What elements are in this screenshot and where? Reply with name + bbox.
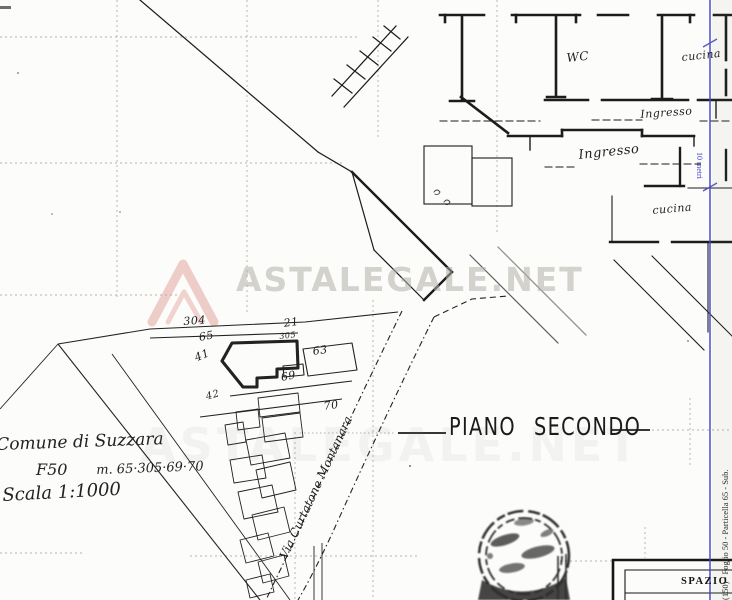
footer-block-label: SPAZIO RI (681, 577, 732, 588)
room-label-wc: WC (566, 50, 590, 64)
note-sheet: F50 (36, 462, 67, 478)
note-parcel-list: m. 65·305·69·70 (96, 460, 204, 477)
parcel-number-65: 65 (198, 329, 215, 342)
watermark-brand-text: ASTALEGALE.NET (236, 263, 584, 296)
room-label-ingresso-upper: Ingresso (640, 105, 693, 120)
round-ink-stamp (478, 511, 570, 600)
grid-lines (0, 0, 732, 600)
parcel-number-63: 63 (312, 344, 328, 357)
room-label-cucina-lower: cucina (652, 202, 692, 216)
parcel-number-304: 304 (183, 314, 206, 327)
parcel-number-21: 21 (283, 316, 299, 329)
scan-specks (0, 6, 689, 467)
plan-title: PIANO SECONDO (449, 416, 641, 441)
parcel-number-69: 69 (280, 369, 297, 382)
drawing-canvas (0, 0, 732, 600)
parcel-number-70: 70 (323, 399, 339, 412)
blue-scale-note: 10 metri (695, 152, 703, 179)
scanned-cadastral-floorplan: ASTALEGALE.NET ASTALEGALE.NET WC cucina … (0, 0, 732, 600)
